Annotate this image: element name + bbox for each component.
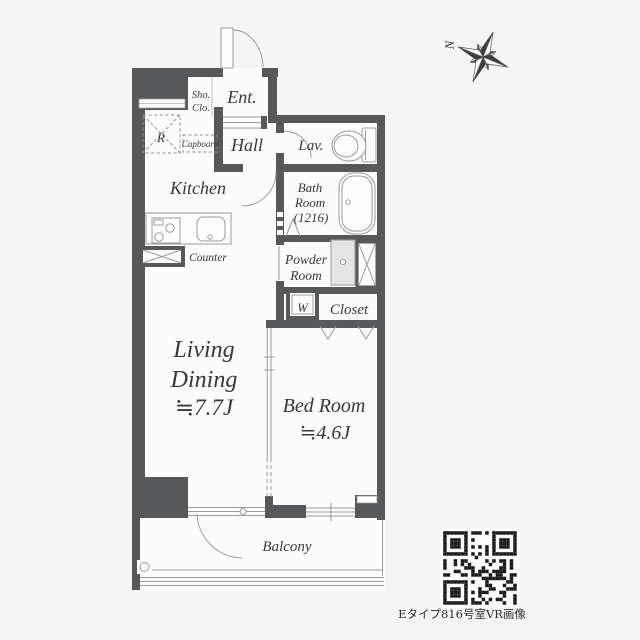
balcony-drain [137, 560, 152, 574]
powder-room-label-2: Room [289, 268, 322, 283]
floor-plan-page: Sho. Clo. Ent. Hall Lav. Kitchen R Cupbo… [0, 0, 640, 640]
powder-room-label-1: Powder [284, 252, 328, 267]
bathroom-label-3: (1216) [294, 210, 329, 225]
entrance-label: Ent. [226, 87, 257, 107]
bedroom-label-2: ≒4.6J [300, 422, 352, 444]
compass: N [442, 22, 518, 92]
counter-end-cabinet [139, 246, 185, 267]
kitchen-counter [146, 213, 231, 244]
washstand [331, 240, 355, 285]
balcony-label: Balcony [262, 539, 311, 555]
bedroom-label-1: Bed Room [283, 395, 366, 417]
compass-star [448, 22, 518, 92]
shoclo-label-2: Clo. [192, 103, 210, 114]
living-label-2: Dining [170, 367, 238, 393]
bathtub [339, 173, 375, 234]
living-label-3: ≒7.7J [175, 395, 235, 420]
qr-code [440, 528, 520, 608]
shoclo-label-1: Sho. [192, 90, 210, 101]
bathroom-label-2: Room [294, 195, 325, 210]
north-label: N [442, 39, 457, 50]
washer-label: W [297, 301, 309, 315]
floor-plan-canvas: Sho. Clo. Ent. Hall Lav. Kitchen R Cupbo… [0, 0, 640, 640]
refrigerator-label: R [156, 130, 165, 145]
lavatory-label: Lav. [297, 138, 323, 154]
closet-label: Closet [330, 302, 369, 318]
entrance-door [221, 28, 263, 68]
living-label-1: Living [172, 337, 234, 363]
hall-label: Hall [230, 135, 263, 155]
pipe-shaft [357, 242, 377, 287]
counter-label: Counter [189, 252, 227, 264]
cupboard-label: Cupboard [182, 139, 219, 149]
hall-threshold [217, 116, 267, 129]
qr-caption: Eタイプ816号室VR画像 [398, 607, 526, 621]
bathroom-label-1: Bath [298, 180, 323, 195]
kitchen-label: Kitchen [169, 178, 226, 198]
